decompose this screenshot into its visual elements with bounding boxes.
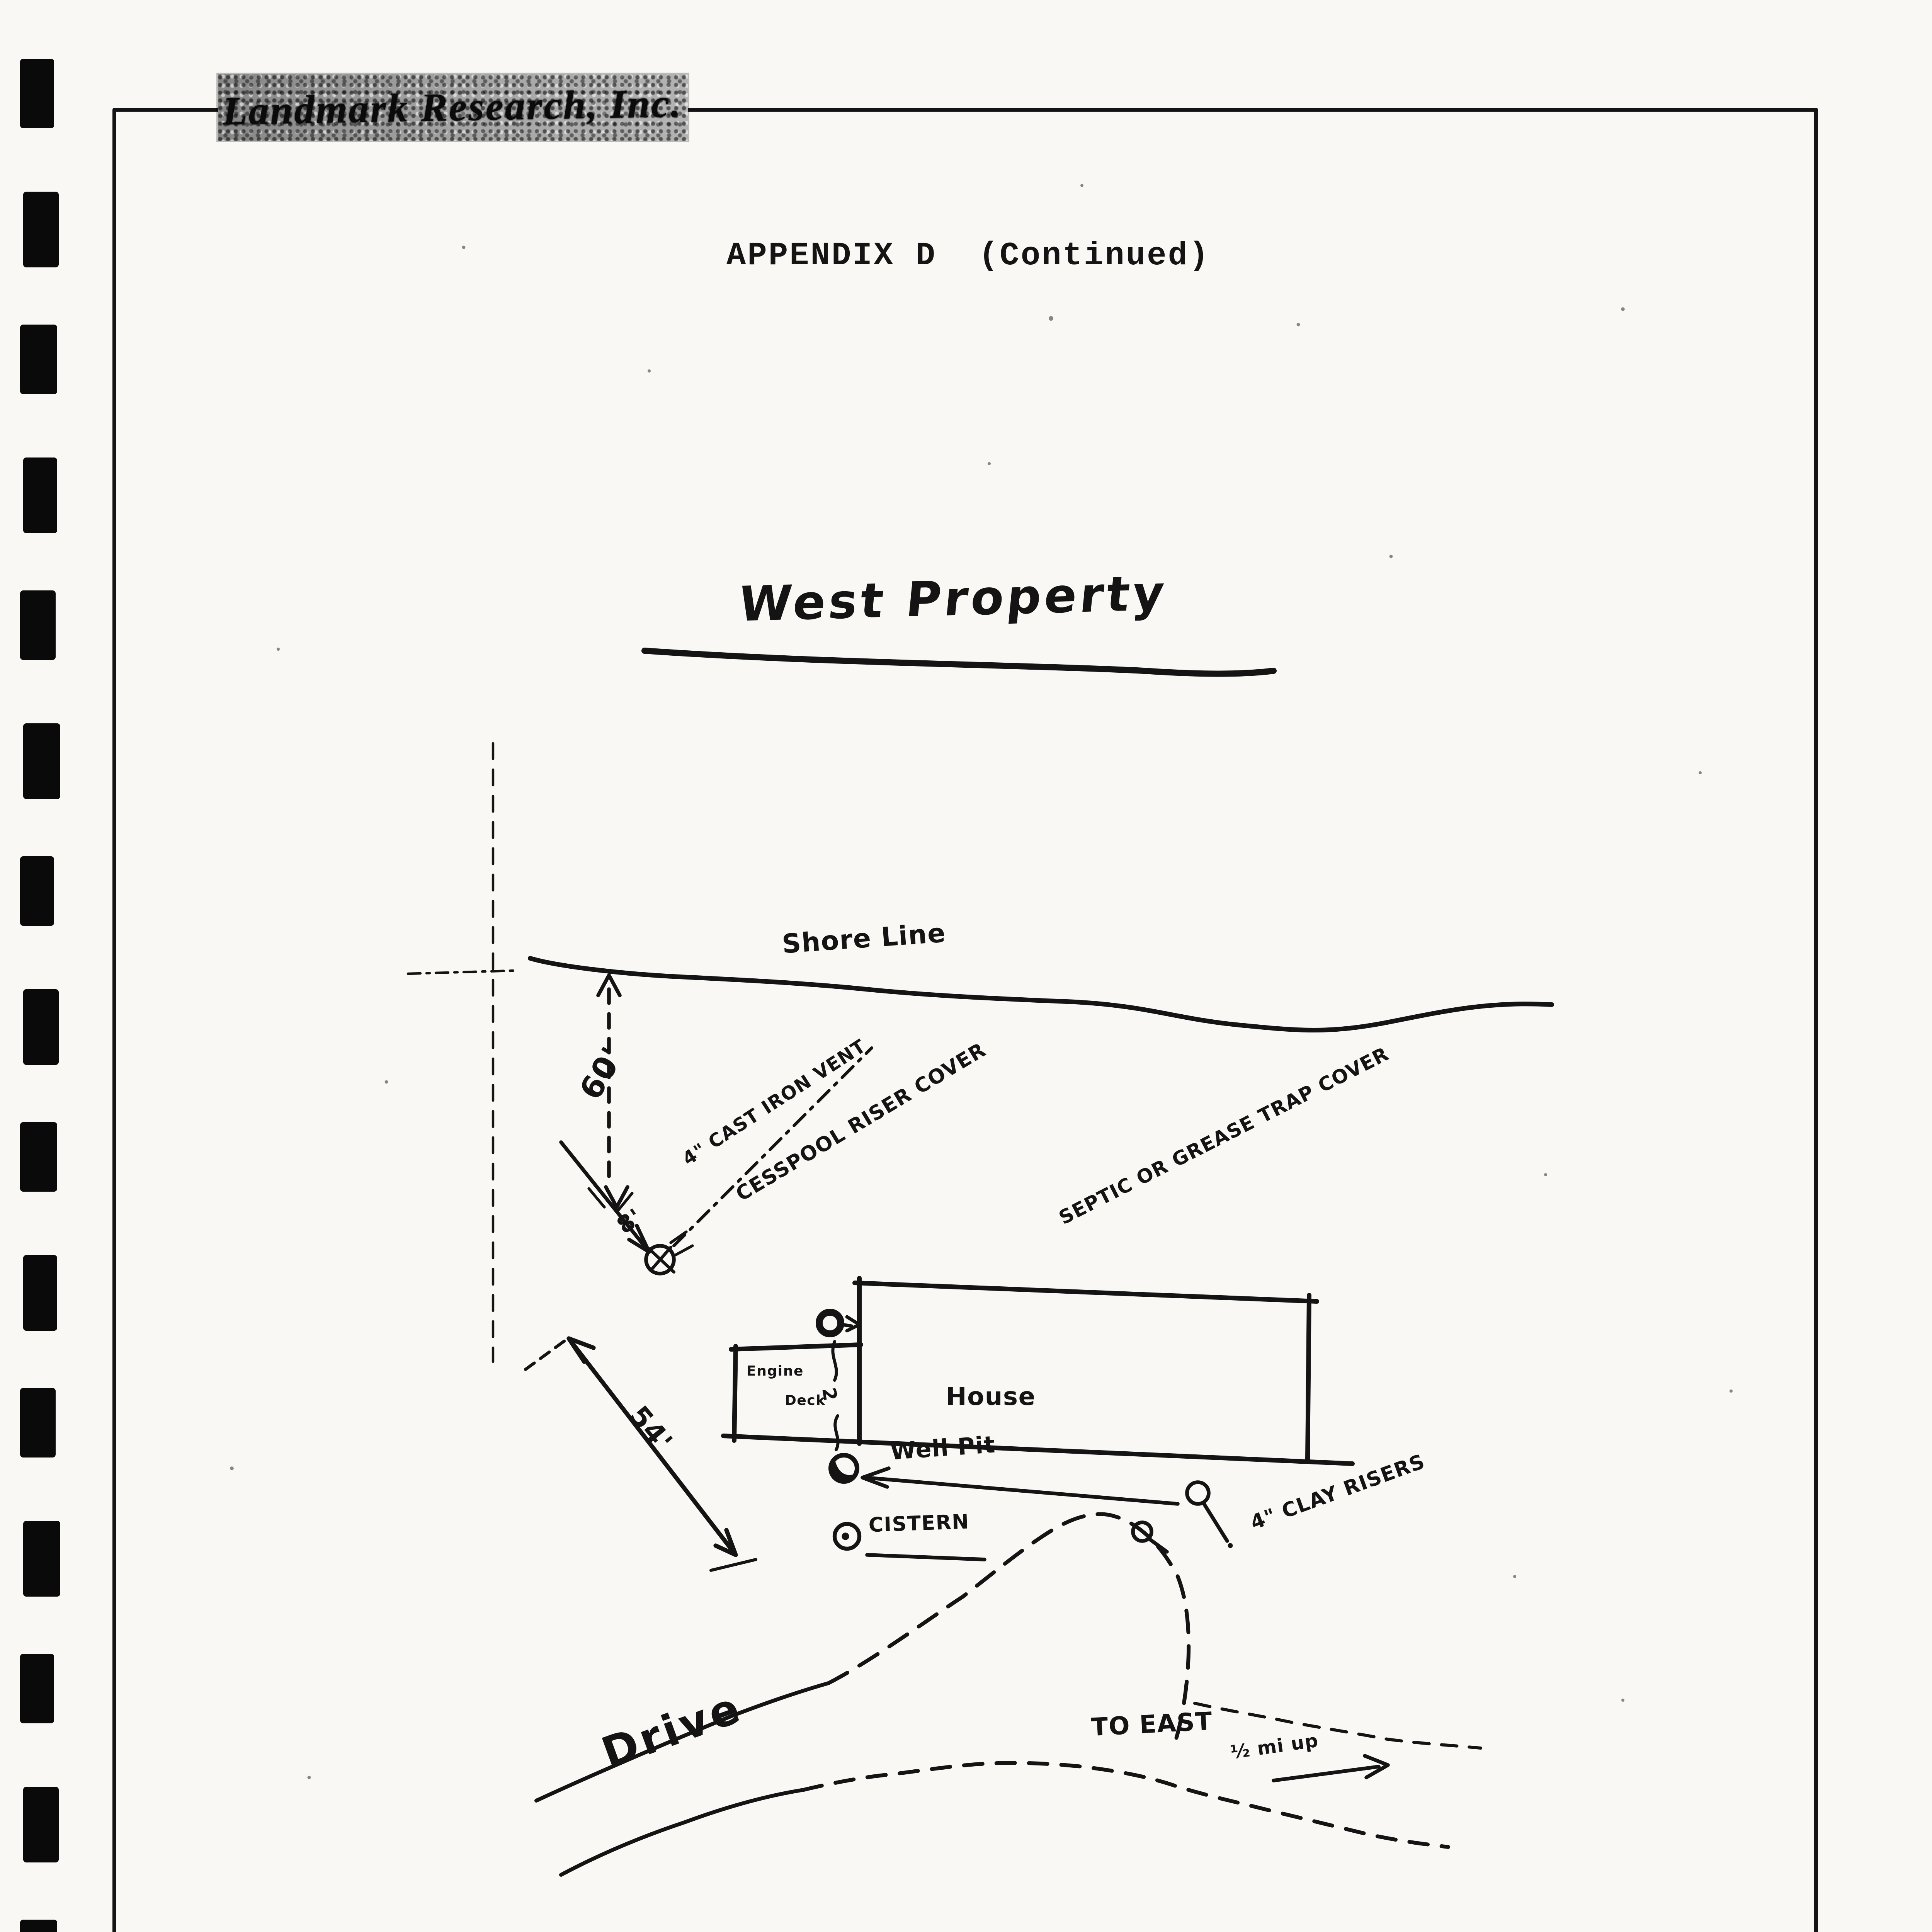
clay-riser-symbols bbox=[1133, 1482, 1233, 1552]
page: Landmark Research, Inc. APPENDIX D (Cont… bbox=[0, 0, 1932, 1932]
shore-line-path bbox=[530, 958, 1552, 1030]
house-vent-symbol bbox=[819, 1312, 859, 1334]
well-pit-symbol bbox=[831, 1455, 857, 1481]
dimension-54 bbox=[526, 1338, 756, 1570]
well-pit-arrow bbox=[862, 1468, 1178, 1504]
page-border bbox=[114, 110, 1816, 1932]
binder-hole-mark bbox=[20, 1122, 57, 1192]
property-line bbox=[408, 743, 513, 1362]
sketch-title: West Property bbox=[736, 569, 1169, 631]
letterhead-logo: Landmark Research, Inc. bbox=[218, 74, 688, 141]
binder-hole-mark bbox=[20, 325, 57, 394]
binder-hole-mark bbox=[23, 989, 59, 1065]
deck-label: Engine Deck bbox=[747, 1366, 826, 1410]
binder-hole-mark bbox=[23, 1255, 57, 1331]
binder-hole-mark bbox=[20, 1388, 56, 1458]
logo-text: Landmark Research, Inc. bbox=[223, 80, 683, 135]
binder-hole-mark bbox=[20, 1920, 57, 1932]
page-title: APPENDIX D (Continued) bbox=[726, 241, 1210, 275]
binder-hole-mark bbox=[20, 59, 54, 128]
dimension-8 bbox=[561, 1142, 649, 1252]
binder-hole-mark bbox=[20, 856, 54, 926]
drive-outline bbox=[536, 1514, 1481, 1875]
scanned-page: Landmark Research, Inc. APPENDIX D (Cont… bbox=[0, 0, 1932, 1932]
site-sketch-drawing bbox=[0, 0, 1932, 1932]
binder-hole-mark bbox=[23, 723, 60, 799]
to-east-arrow bbox=[1274, 1756, 1388, 1781]
binder-hole-mark bbox=[23, 1521, 60, 1597]
title-underline bbox=[645, 651, 1274, 674]
cesspool-riser-symbol bbox=[646, 1232, 692, 1274]
deck-label-line1: Engine bbox=[747, 1365, 804, 1380]
cistern-label: CISTERN bbox=[868, 1513, 969, 1537]
binder-hole-mark bbox=[23, 457, 57, 533]
binder-hole-mark bbox=[20, 590, 56, 660]
binder-hole-mark bbox=[23, 192, 59, 267]
house-label: House bbox=[946, 1385, 1036, 1411]
binder-hole-mark bbox=[23, 1787, 59, 1862]
binder-hole-mark bbox=[20, 1654, 54, 1723]
